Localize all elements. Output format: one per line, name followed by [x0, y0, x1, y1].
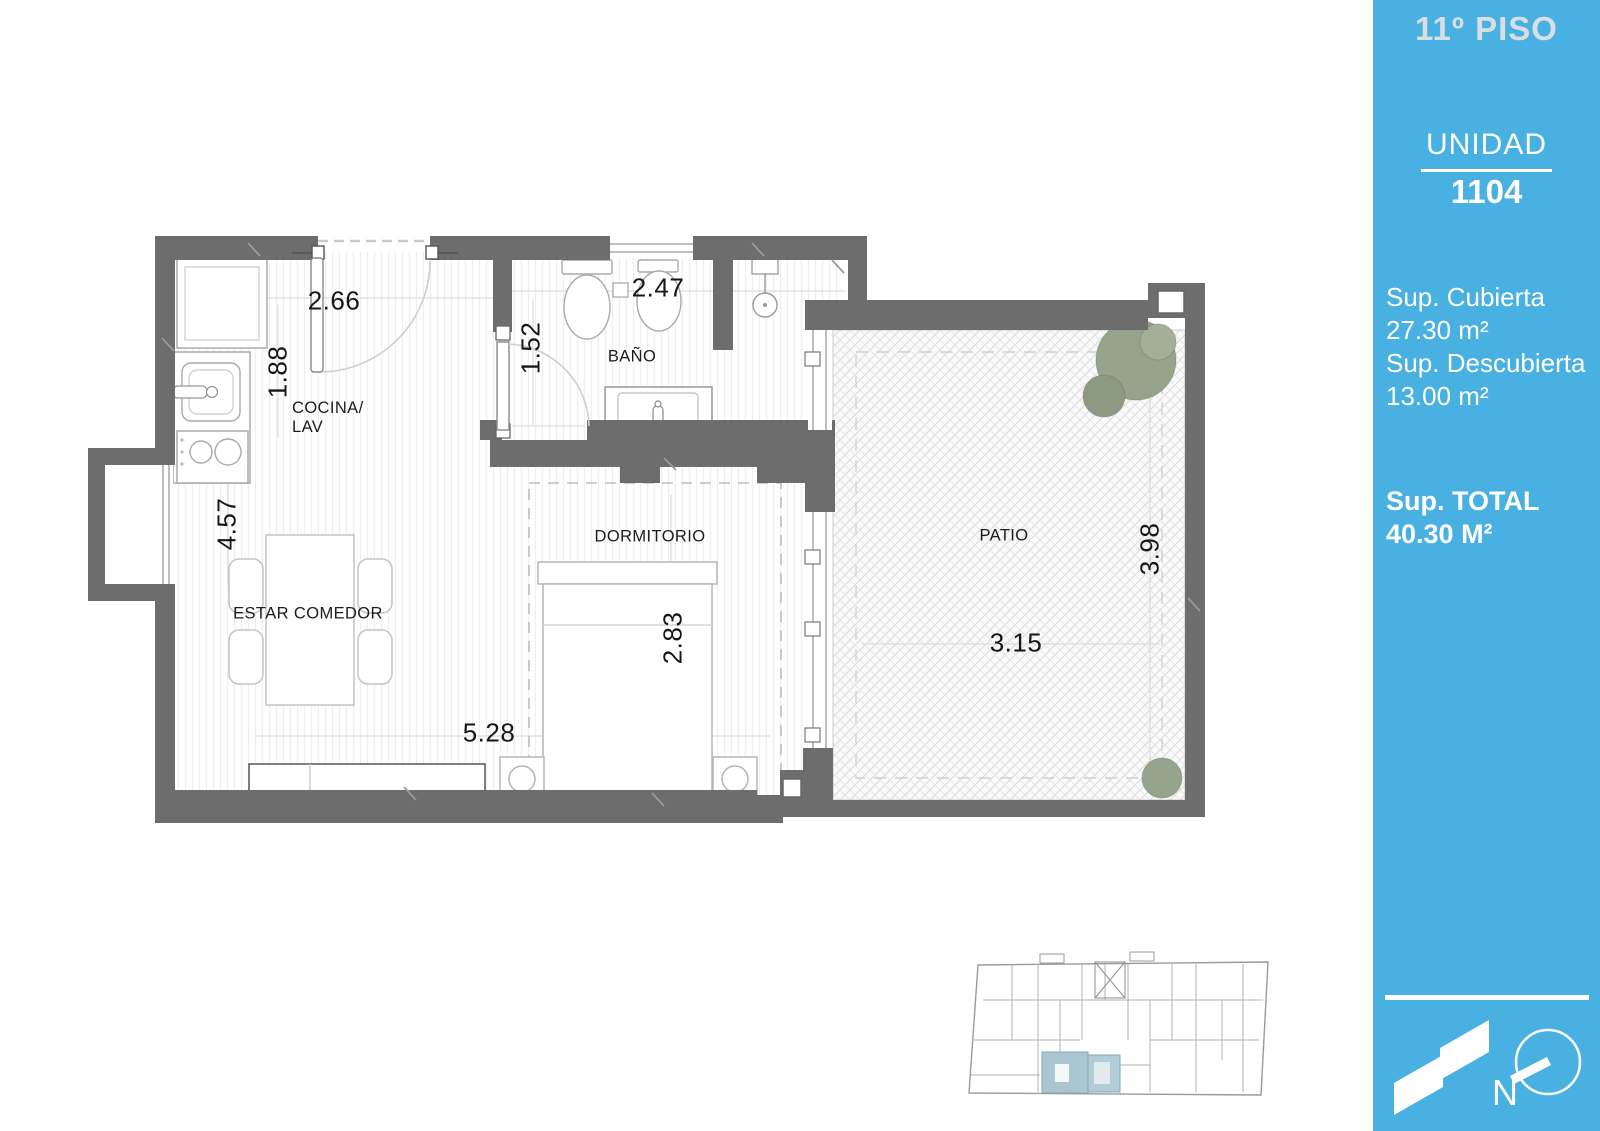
door-jamb [312, 246, 324, 259]
surface-areas: Sup. Cubierta 27.30 m² Sup. Descubierta … [1386, 281, 1585, 413]
dimension-label: 1.52 [516, 322, 547, 375]
mullion-icon [805, 728, 820, 742]
lamp-icon [509, 766, 535, 792]
info-sidebar: 11º PISO UNIDAD 1104 Sup. Cubierta 27.30… [1373, 0, 1600, 1131]
room-label-patio: PATIO [979, 527, 1028, 546]
mullion-icon [805, 622, 820, 636]
dimension-label: 1.88 [263, 346, 294, 399]
bath-door-leaf [497, 342, 509, 430]
lamp-icon [722, 766, 748, 792]
mullion-icon [805, 550, 820, 564]
unit-number: 1104 [1373, 173, 1600, 211]
dimension-label: 3.15 [990, 628, 1043, 659]
floor-plan-page: 2.66 1.88 1.52 2.47 4.57 2.83 5.28 3.15 … [0, 0, 1600, 1131]
room-label-bano: BAÑO [608, 348, 656, 367]
total-area: Sup. TOTAL 40.30 M² [1386, 485, 1539, 551]
total-area-value: 40.30 M² [1386, 518, 1539, 551]
covered-area-value: 27.30 m² [1386, 314, 1585, 347]
chair-icon [358, 630, 392, 684]
dimension-label: 2.66 [308, 286, 361, 317]
bidet-icon [638, 260, 678, 272]
chair-icon [229, 630, 263, 684]
sidebar-divider [1385, 995, 1589, 1000]
patio-floor [833, 330, 1185, 800]
bush-icon [1083, 375, 1125, 417]
floor-title: 11º PISO [1373, 10, 1600, 48]
faucet-icon [173, 386, 207, 398]
toilet-icon [562, 260, 612, 274]
room-label-dormitorio: DORMITORIO [595, 528, 706, 547]
shower-mixer-icon [752, 258, 778, 274]
headboard-icon [538, 562, 717, 584]
dimension-label: 3.98 [1135, 523, 1166, 576]
column-icon [1158, 291, 1184, 313]
window-icon [610, 238, 693, 258]
key-plan [969, 952, 1268, 1095]
mullion-icon [805, 352, 820, 366]
floor-plan [0, 0, 1373, 1131]
tree-icon [1142, 758, 1182, 798]
total-area-label: Sup. TOTAL [1386, 485, 1539, 518]
uncovered-area-label: Sup. Descubierta [1386, 347, 1585, 380]
covered-area-label: Sup. Cubierta [1386, 281, 1585, 314]
room-label-estar: ESTAR COMEDOR [233, 605, 383, 624]
north-letter: N [1492, 1072, 1518, 1114]
dimension-label: 4.57 [212, 498, 243, 551]
column-icon [783, 779, 801, 797]
dimension-label: 2.47 [632, 273, 685, 304]
dimension-label: 5.28 [463, 718, 516, 749]
door-jamb [426, 246, 438, 259]
unit-label-wrap: UNIDAD [1373, 128, 1600, 172]
room-label-cocina: COCINA/ LAV [292, 399, 364, 437]
unit-label: UNIDAD [1421, 128, 1552, 172]
uncovered-area-value: 13.00 m² [1386, 380, 1585, 413]
door-jamb [496, 326, 510, 340]
dimension-label: 2.83 [658, 612, 689, 665]
